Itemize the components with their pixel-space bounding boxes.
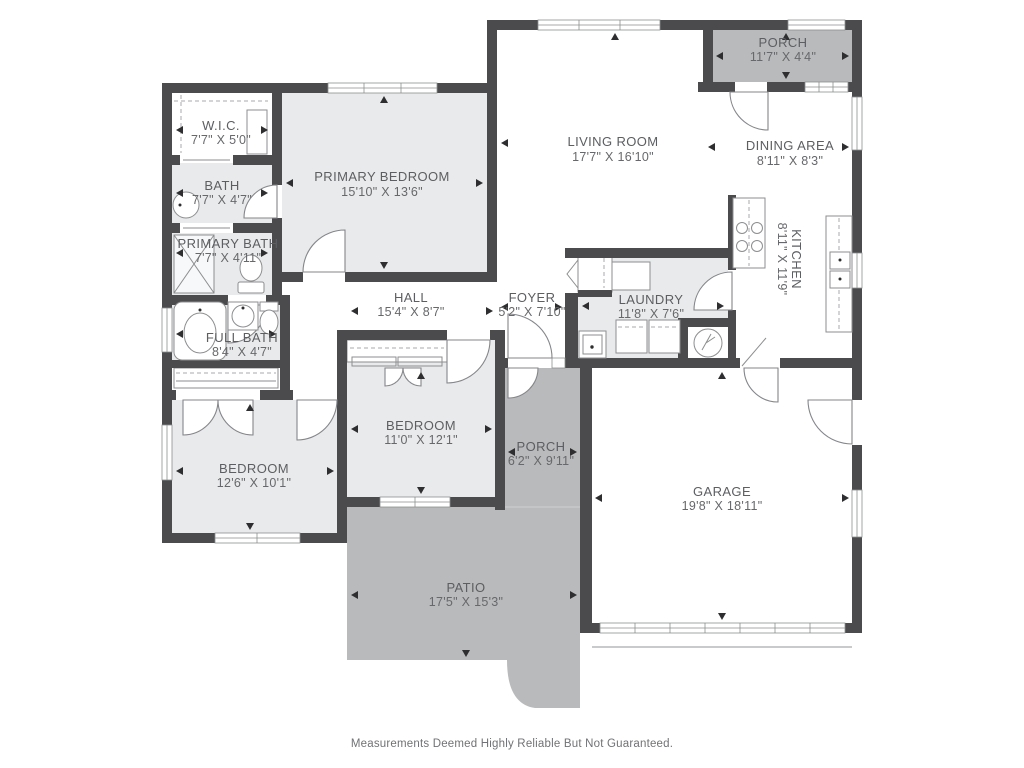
floor-plan-page: PORCH 11'7" X 4'4" LIVING ROOM 17'7" X 1…	[0, 0, 1024, 768]
room-label-bedroom-center: BEDROOM	[386, 418, 456, 433]
room-dims-garage: 19'8" X 18'11"	[682, 499, 763, 513]
room-dims-primary-bedroom: 15'10" X 13'6"	[341, 185, 423, 199]
primary-bath-toilet-tank	[238, 282, 264, 293]
laundry-counter	[612, 262, 650, 290]
water-heater	[694, 329, 722, 357]
room-label-rear-porch: PORCH	[759, 35, 808, 50]
room-dims-hall: 15'4" X 8'7"	[377, 305, 444, 319]
room-dims-laundry: 11'8" X 7'6"	[618, 307, 684, 321]
room-label-front-porch: PORCH	[517, 439, 566, 454]
room-dims-bath: 7'7" X 4'7"	[192, 193, 252, 207]
room-label-hall: HALL	[394, 290, 428, 305]
room-dims-primary-bath: 7'7" X 4'11"	[195, 251, 261, 265]
room-dims-dining-area: 8'11" X 8'3"	[757, 154, 823, 168]
disclaimer-text: Measurements Deemed Highly Reliable But …	[351, 738, 673, 750]
room-label-primary-bedroom: PRIMARY BEDROOM	[314, 169, 450, 184]
room-label-patio: PATIO	[446, 580, 485, 595]
room-dims-kitchen: 8'11" X 11'9"	[775, 223, 789, 296]
coat-closet	[578, 256, 612, 292]
room-label-dining-area: DINING AREA	[746, 138, 834, 153]
dryer	[649, 320, 680, 353]
room-label-bath: BATH	[204, 178, 239, 193]
room-label-primary-bath: PRIMARY BATH	[178, 236, 279, 251]
washer	[616, 320, 647, 353]
room-label-foyer: FOYER	[509, 290, 556, 305]
room-dims-full-bath: 8'4" X 4'7"	[212, 345, 272, 359]
floor-plan-svg: PORCH 11'7" X 4'4" LIVING ROOM 17'7" X 1…	[0, 0, 1024, 768]
bedroom-center-closet	[347, 340, 447, 362]
room-dims-bedroom-left: 12'6" X 10'1"	[217, 476, 292, 490]
room-dims-bedroom-center: 11'0" X 12'1"	[384, 433, 458, 447]
room-label-full-bath: FULL BATH	[206, 330, 278, 345]
room-label-kitchen: KITCHEN	[789, 229, 804, 289]
room-label-laundry: LAUNDRY	[619, 292, 684, 307]
room-dims-foyer: 5'2" X 7'10"	[498, 305, 565, 319]
room-dims-rear-porch: 11'7" X 4'4"	[750, 50, 816, 64]
room-dims-front-porch: 6'2" X 9'11"	[508, 454, 574, 468]
room-dims-patio: 17'5" X 15'3"	[429, 595, 504, 609]
room-label-living-room: LIVING ROOM	[567, 134, 658, 149]
room-dims-living-room: 17'7" X 16'10"	[572, 150, 654, 164]
room-label-wic: W.I.C.	[202, 118, 240, 133]
room-dims-wic: 7'7" X 5'0"	[191, 133, 251, 147]
room-label-bedroom-left: BEDROOM	[219, 461, 289, 476]
kitchen-label-group: KITCHEN 8'11" X 11'9"	[775, 223, 804, 296]
room-label-garage: GARAGE	[693, 484, 751, 499]
